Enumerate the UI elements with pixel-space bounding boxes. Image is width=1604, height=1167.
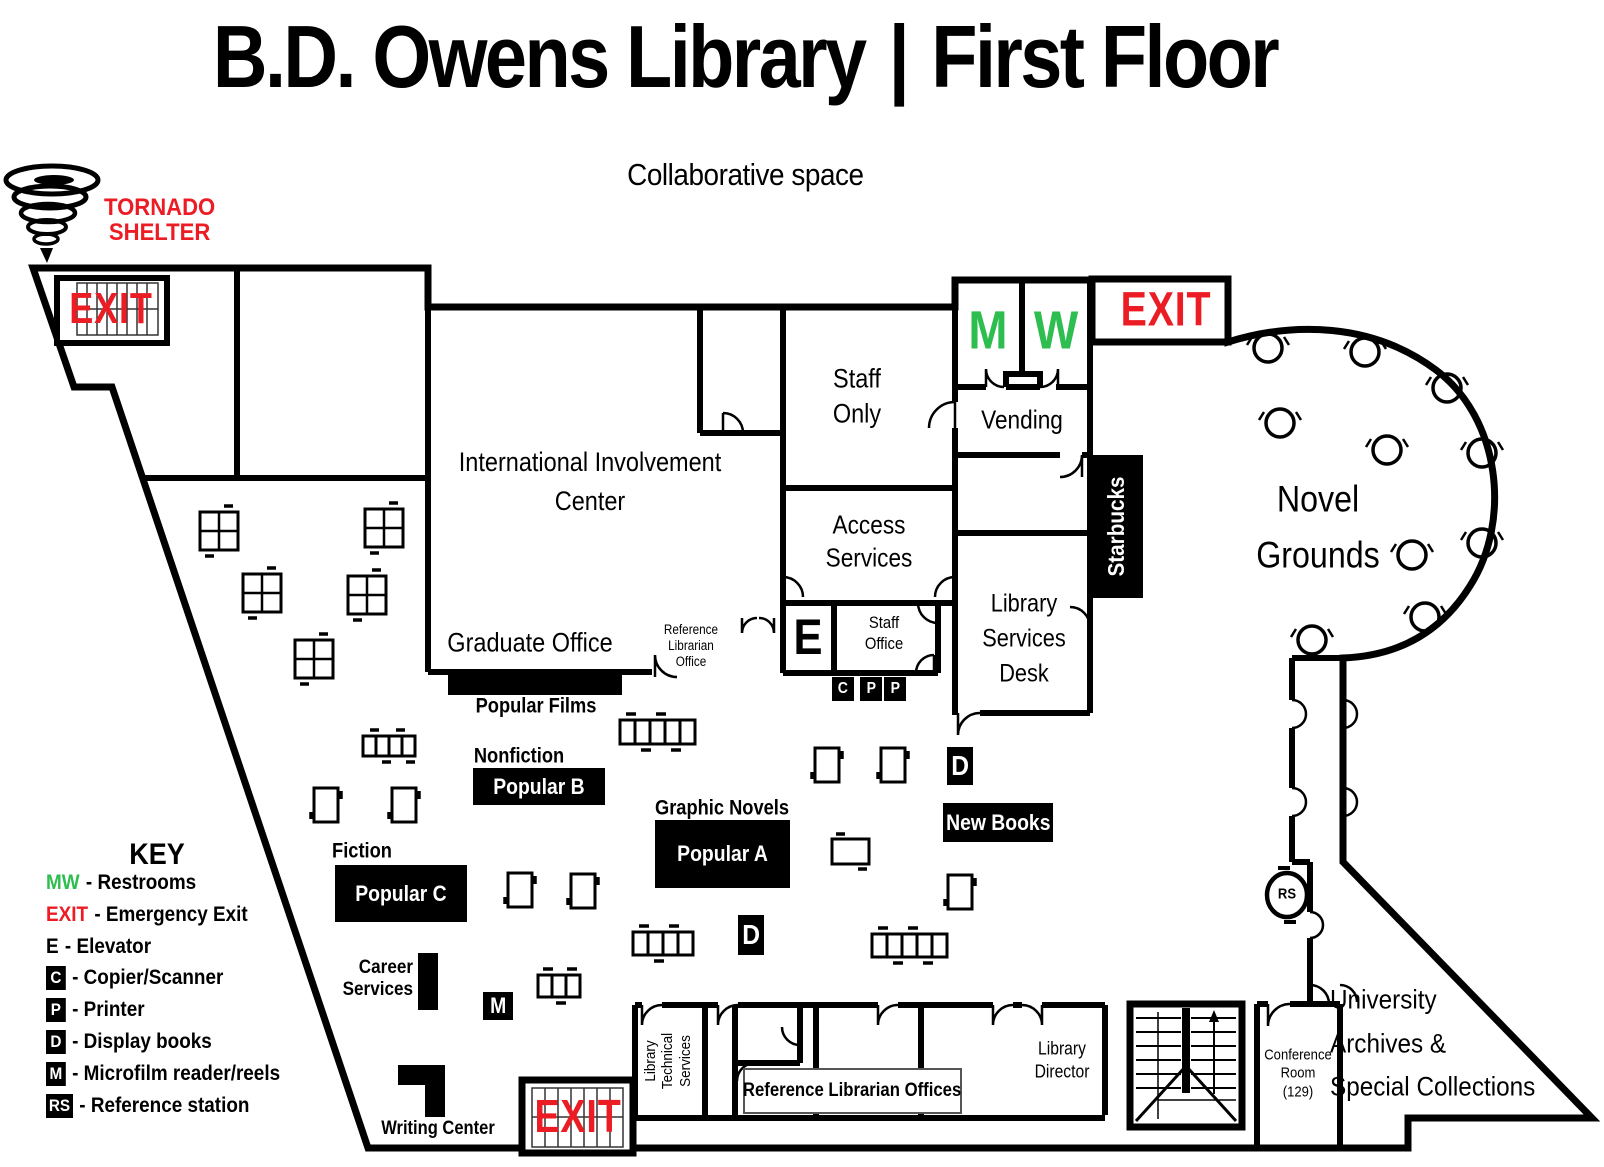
printer-symbol: P [860,677,882,701]
title-floor: First Floor [931,6,1277,108]
area-label-university-archives: University Archives & Special Collection… [1330,978,1535,1109]
reference-station-sign: RS [1278,884,1296,903]
shelf-label-fiction: Fiction [332,839,392,866]
title-separator: | [889,6,908,108]
key-item-printer: P- Printer [46,998,145,1022]
printer-symbol: P [884,677,906,701]
exit-sign-northeast: EXIT [1121,283,1212,338]
library-floor-map: B.D. Owens Library | First Floor Collabo… [0,0,1604,1167]
subtitle: Collaborative space [0,157,1490,193]
room-label-vending: Vending [981,403,1063,436]
key-title: KEY [129,838,185,872]
area-label-writing-center: Writing Center [381,1117,495,1141]
key-item-display-books: D- Display books [46,1030,212,1054]
shelf-popular-a: Popular A [655,820,790,888]
key-item-reference-station: RS- Reference station [46,1094,249,1118]
shelf-new-books: New Books [943,803,1053,842]
shelf-popular-b: Popular B [473,768,605,805]
area-label-novel-grounds: NovelGrounds [1256,472,1379,583]
room-label-reference-librarian-office: Reference Librarian Office [664,622,718,670]
shelf-popular-c: Popular C [335,865,467,922]
room-label-reference-librarian-offices: Reference Librarian Offices [743,1068,962,1114]
room-label-conference-room: Conference Room (129) [1264,1047,1331,1102]
square-tables [200,503,403,684]
microfilm-symbol: M [483,992,513,1020]
display-books-symbol: D [947,747,973,785]
starbucks-kiosk: Starbucks [1090,455,1143,598]
tornado-shelter-label: TORNADO SHELTER [104,196,215,246]
shelf-label-nonfiction: Nonfiction [474,744,564,771]
shelf-label-graphic-novels: Graphic Novels [655,796,789,823]
room-label-access-services: AccessServices [826,509,913,576]
main-staircase [1130,1004,1242,1127]
room-label-library-director: LibraryDirector [1035,1038,1090,1085]
room-label-staff-only: StaffOnly [833,361,881,430]
key-item-elevator: E- Elevator [46,935,151,959]
area-label-career-services: CareerServices [338,957,413,1001]
room-label-graduate-office: Graduate Office [447,626,612,661]
elevator-sign: E [793,605,822,669]
restroom-women-sign: W [1034,296,1078,365]
shelf-label-popular-films: Popular Films [476,694,597,721]
room-label-staff-office: StaffOffice [865,612,903,655]
exit-sign-northwest: EXIT [69,284,152,334]
page-title: B.D. Owens Library | First Floor [104,6,1385,108]
key-item-emergency-exit: EXIT- Emergency Exit [46,903,248,927]
room-label-library-services-desk: Library Services Desk [982,587,1065,692]
room-label-library-technical-services: Library Technical Services [642,1033,694,1089]
key-item-restrooms: MW- Restrooms [46,871,196,895]
restroom-men-sign: M [968,296,1007,365]
display-books-symbol: D [738,915,764,955]
exit-sign-south: EXIT [534,1089,621,1143]
door-arcs [642,369,1357,1081]
key-item-microfilm: M- Microfilm reader/reels [46,1062,280,1086]
room-label-international-involvement-center: International Involvement Center [459,443,721,521]
title-library: B.D. Owens Library [213,6,865,108]
copier-symbol: C [832,677,854,701]
key-item-copier-scanner: C- Copier/Scanner [46,966,223,990]
